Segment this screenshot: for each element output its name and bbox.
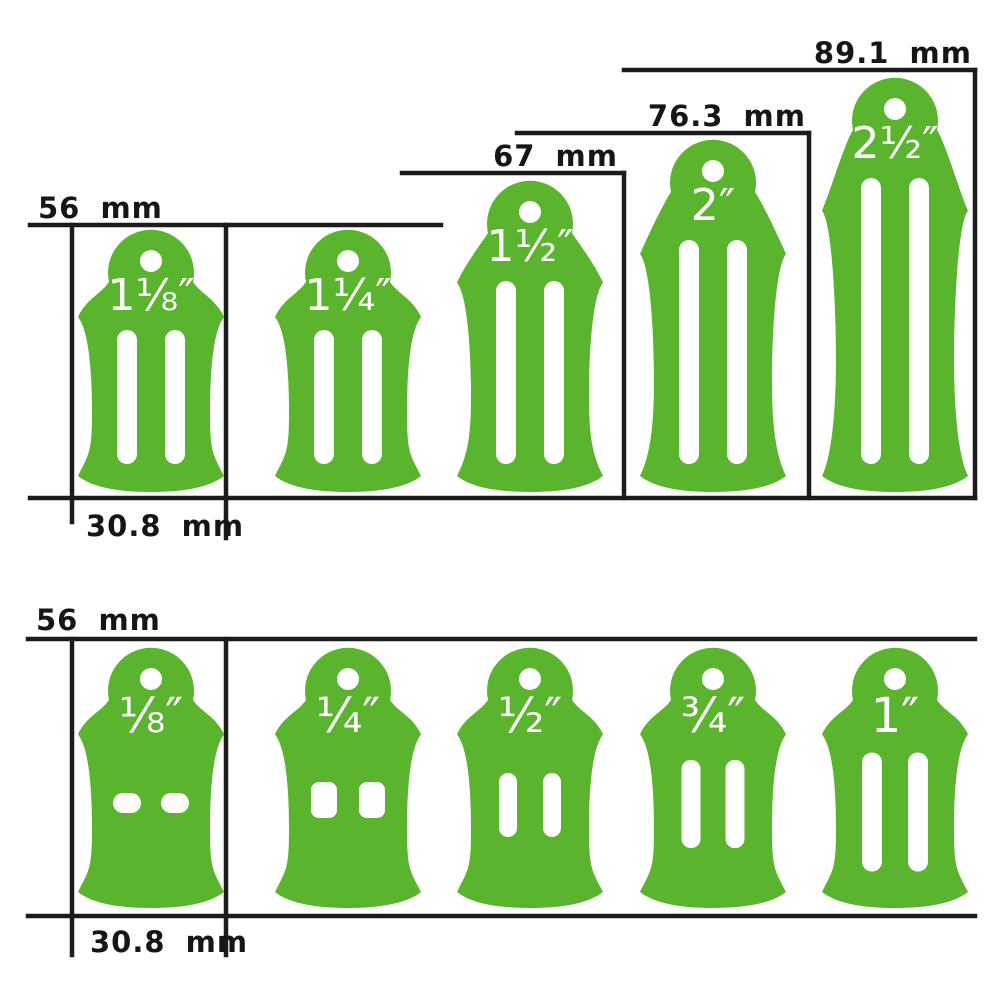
product-dimension-diagram: 56 mm 67 mm 76.3 mm 89.1 mm 30.8 mm 1⅛″ …	[0, 0, 1000, 1000]
top-row: 56 mm 67 mm 76.3 mm 89.1 mm 30.8 mm 1⅛″ …	[30, 36, 975, 543]
keeper-size-label: 1⅛″	[107, 270, 194, 321]
keeper-size-label: 1″	[871, 688, 919, 744]
keeper-1-8-inch: ⅛″	[78, 648, 224, 908]
keeper-2-inch: 2″	[640, 140, 786, 492]
keeper-size-label: ½″	[498, 688, 562, 744]
keeper-1-1-2-inch: 1½″	[457, 181, 603, 492]
keeper-body	[78, 648, 224, 908]
bottom-row: 56 mm 30.8 mm ⅛″ ¼″ ½″ ¾″ 1″	[28, 603, 975, 959]
keeper-1-inch: 1″	[822, 648, 968, 908]
dim-label-67mm: 67 mm	[493, 139, 618, 173]
keeper-1-1-8-inch: 1⅛″	[78, 230, 224, 492]
keeper-size-label: 2″	[691, 180, 735, 231]
keeper-body	[822, 648, 968, 908]
dim-label-width-top: 30.8 mm	[86, 509, 244, 543]
dim-label-56mm-bottom: 56 mm	[36, 603, 161, 637]
keeper-2-1-2-inch: 2½″	[822, 78, 968, 492]
keeper-body	[457, 648, 603, 908]
keeper-size-label: ¾″	[681, 688, 745, 744]
keeper-body	[640, 648, 786, 908]
dim-label-width-bottom: 30.8 mm	[90, 925, 248, 959]
keeper-size-label: 2½″	[851, 118, 938, 169]
keeper-size-label: ⅛″	[119, 688, 183, 744]
diagram-canvas: 56 mm 67 mm 76.3 mm 89.1 mm 30.8 mm 1⅛″ …	[0, 0, 1000, 1000]
keeper-1-1-4-inch: 1¼″	[275, 230, 421, 492]
keeper-1-4-inch: ¼″	[275, 648, 421, 908]
keeper-body	[275, 648, 421, 908]
keeper-size-label: 1¼″	[304, 270, 391, 321]
keeper-3-4-inch: ¾″	[640, 648, 786, 908]
keeper-size-label: 1½″	[486, 221, 573, 272]
dim-label-56mm-top: 56 mm	[38, 191, 163, 225]
dim-label-89mm: 89.1 mm	[814, 36, 972, 70]
keeper-1-2-inch: ½″	[457, 648, 603, 908]
keeper-size-label: ¼″	[316, 688, 380, 744]
dim-label-76mm: 76.3 mm	[648, 99, 806, 133]
